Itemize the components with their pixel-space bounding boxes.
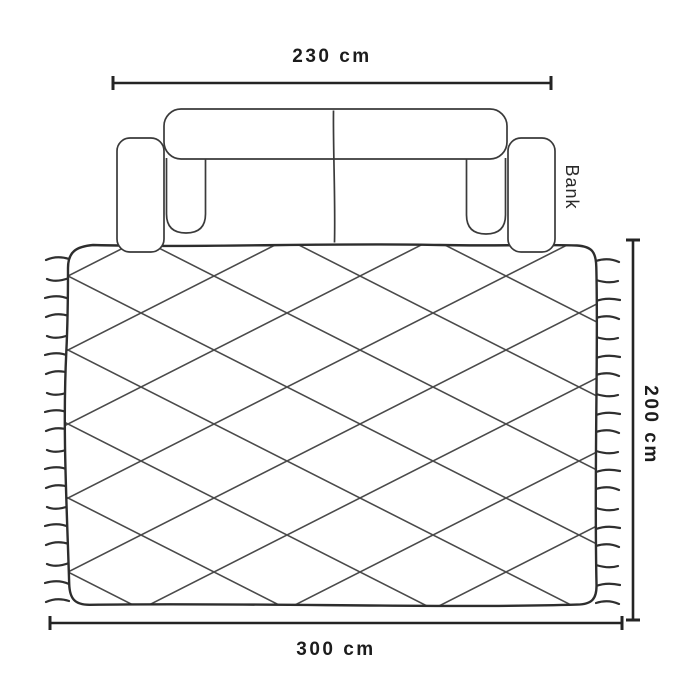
sofa	[117, 109, 555, 252]
rug-depth-label: 200 cm	[640, 385, 661, 464]
dimension-rug-width	[50, 616, 622, 630]
sofa-cushion-edge-right	[467, 158, 506, 234]
dimension-rug-depth	[626, 240, 640, 620]
sofa-product-label: Bank	[562, 164, 582, 209]
dimension-diagram: 230 cm 300 cm 200 cm Bank	[0, 0, 700, 700]
dimension-sofa-width	[113, 76, 551, 90]
rug	[44, 244, 621, 606]
sofa-armrest-left	[117, 138, 164, 252]
sofa-cushion-edge-left	[167, 158, 206, 233]
rug-fringe-right	[595, 253, 621, 605]
sofa-width-label: 230 cm	[292, 46, 371, 67]
rug-width-label: 300 cm	[296, 639, 375, 660]
sofa-backrest	[164, 109, 507, 159]
rug-diamond-pattern	[65, 244, 597, 606]
sofa-armrest-right	[508, 138, 555, 252]
diagram-svg: 230 cm 300 cm 200 cm Bank	[0, 0, 700, 700]
